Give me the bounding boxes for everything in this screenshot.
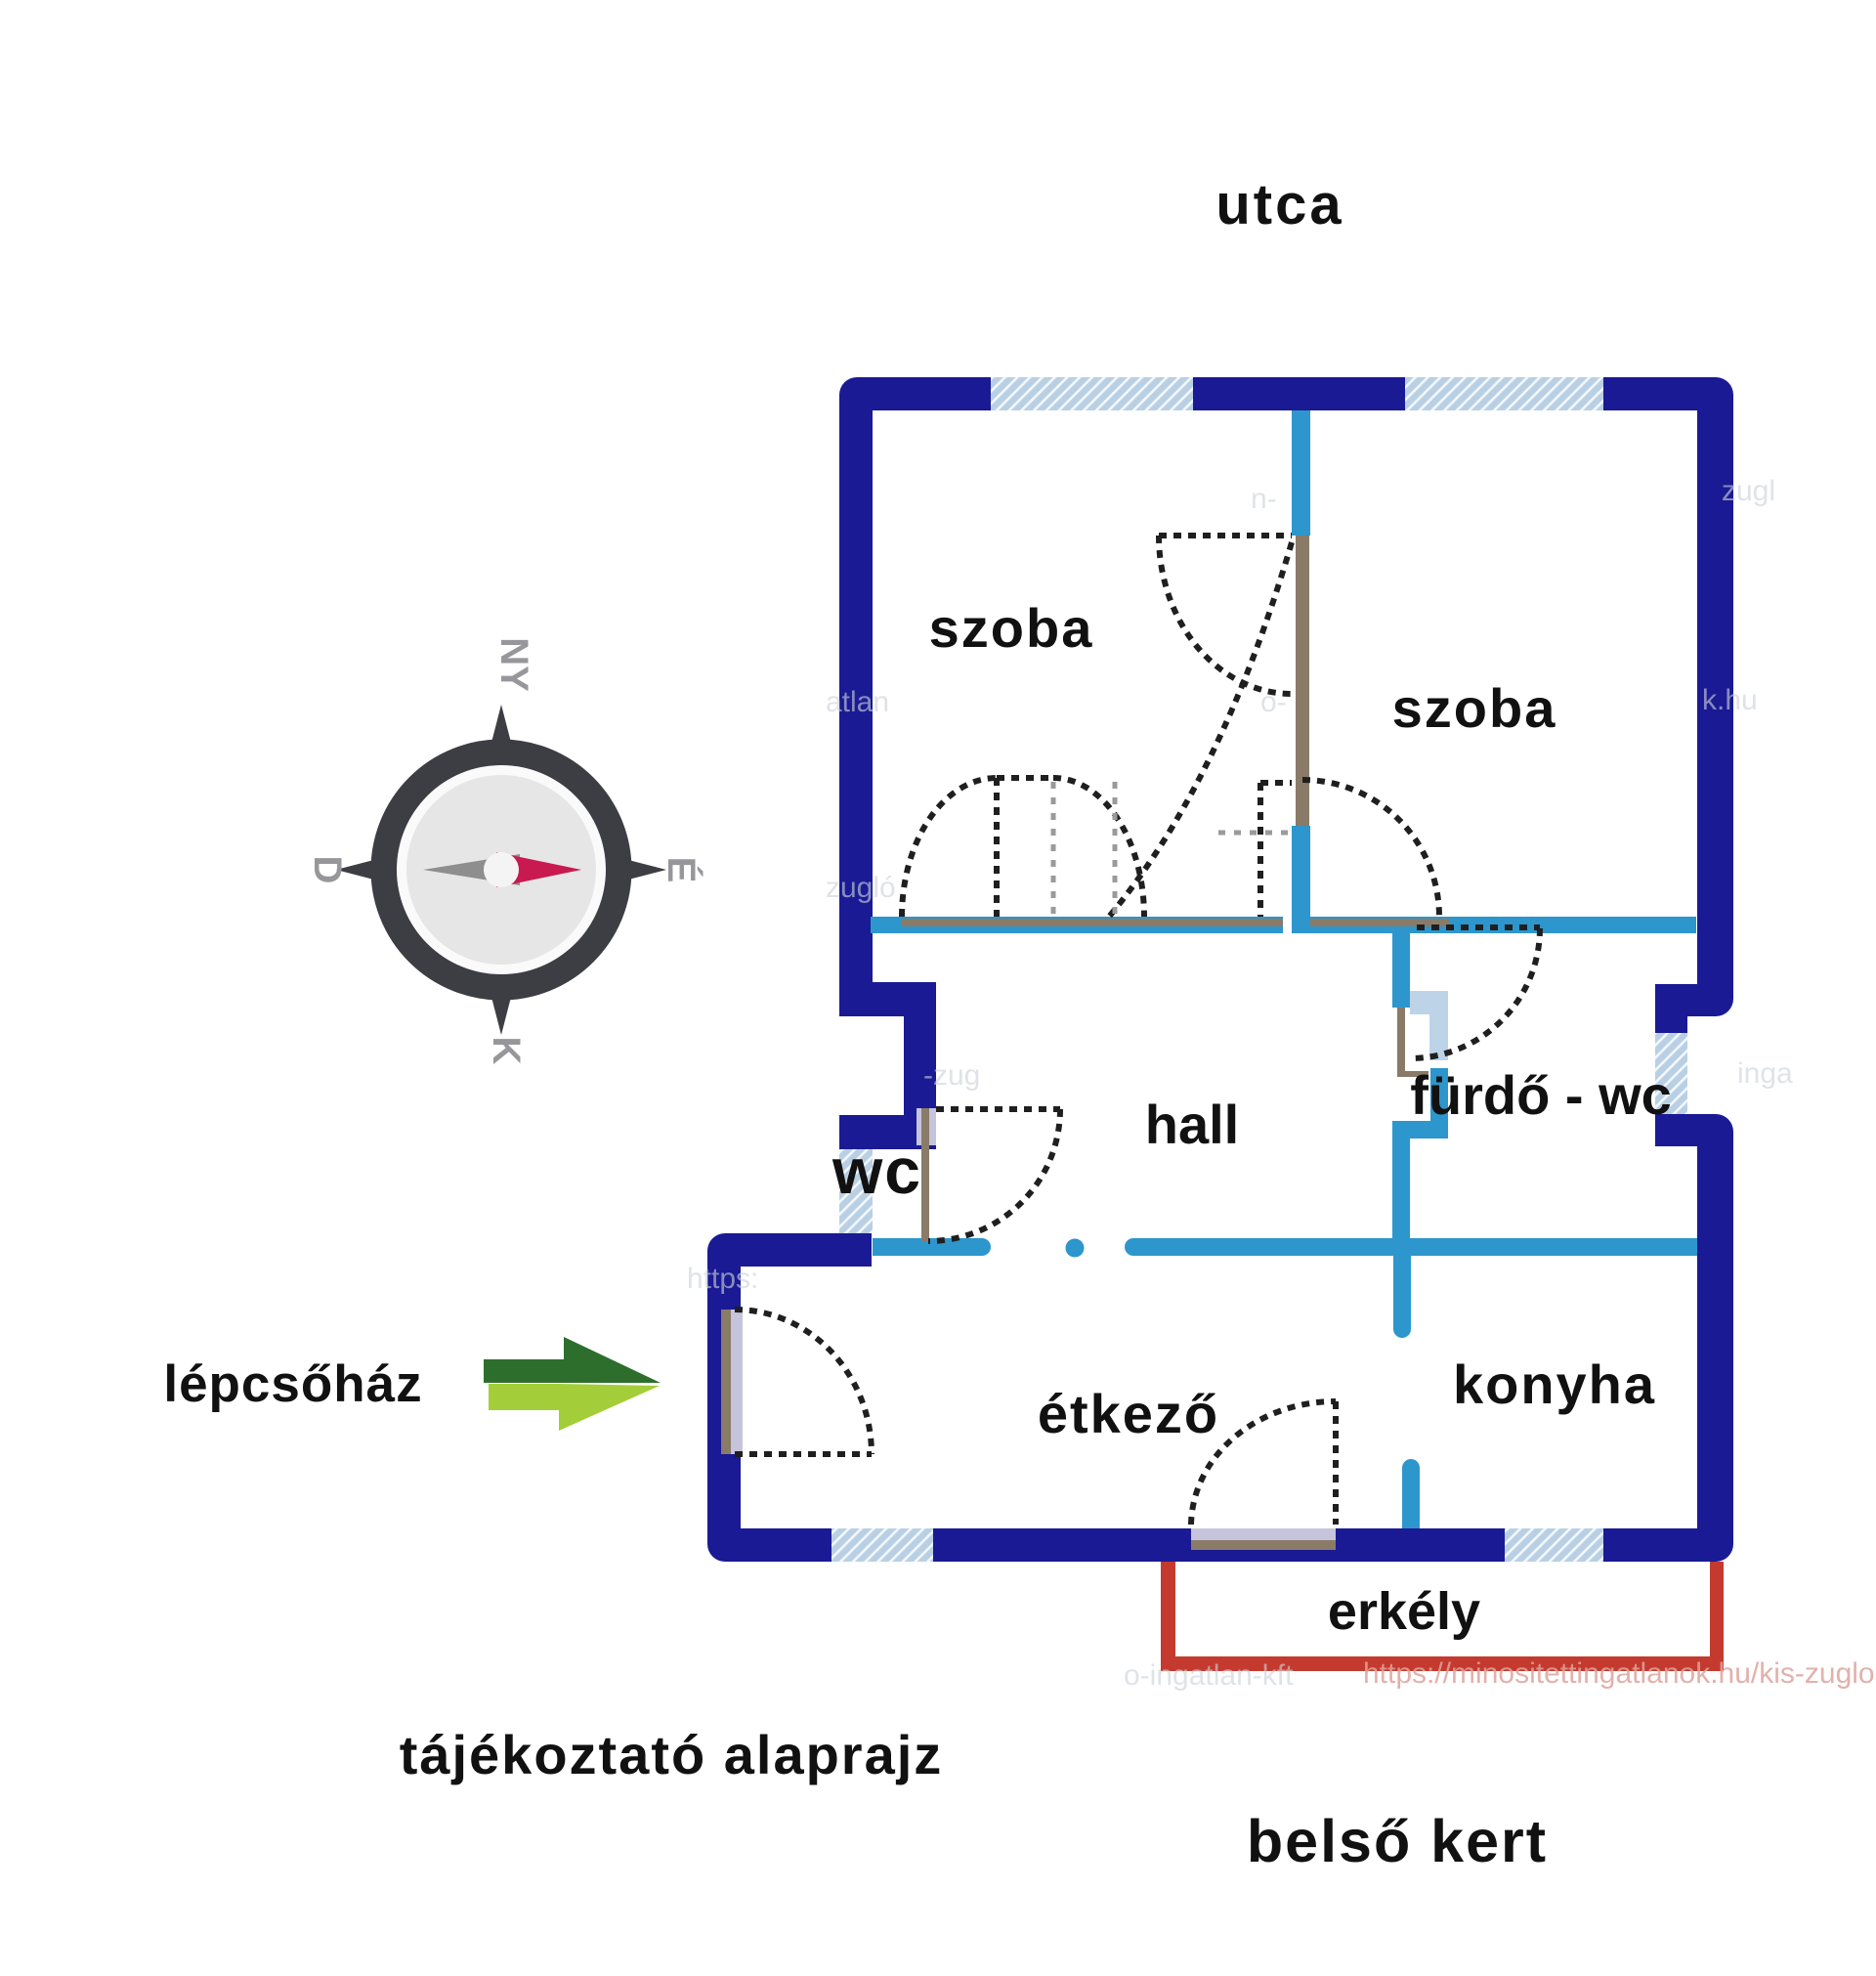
svg-text:belső kert: belső kert	[1247, 1808, 1548, 1874]
svg-text:-zug: -zug	[923, 1059, 980, 1092]
svg-text:lépcsőház: lépcsőház	[163, 1355, 422, 1413]
svg-text:o-ingatlan-kft: o-ingatlan-kft	[1124, 1659, 1294, 1692]
svg-text:K: K	[485, 1037, 528, 1065]
svg-text:hall: hall	[1145, 1094, 1239, 1155]
svg-text:atlan: atlan	[826, 686, 889, 718]
svg-text:erkély: erkély	[1328, 1582, 1480, 1641]
svg-text:É: É	[660, 857, 703, 883]
svg-text:szoba: szoba	[929, 597, 1094, 659]
svg-text:o-: o-	[1260, 686, 1287, 718]
svg-text:n-: n-	[1251, 483, 1277, 515]
svg-text:zugl: zugl	[1722, 475, 1775, 507]
svg-text:tájékoztató alaprajz: tájékoztató alaprajz	[400, 1724, 944, 1785]
svg-text:zugló: zugló	[826, 872, 896, 904]
svg-text:utca: utca	[1215, 173, 1343, 236]
svg-text:wc: wc	[831, 1135, 922, 1207]
svg-text:https:: https:	[687, 1263, 758, 1295]
svg-text:https://minositettingatlanok.h: https://minositettingatlanok.hu/kis-zugl…	[1363, 1657, 1876, 1690]
svg-text:k.hu: k.hu	[1702, 684, 1758, 716]
svg-text:fürdő - wc: fürdő - wc	[1410, 1064, 1672, 1126]
svg-text:konyha: konyha	[1453, 1353, 1656, 1415]
svg-text:szoba: szoba	[1392, 677, 1557, 739]
svg-text:NY: NY	[492, 637, 535, 692]
svg-text:étkező: étkező	[1038, 1383, 1219, 1444]
svg-text:D: D	[306, 856, 349, 884]
svg-text:inga: inga	[1737, 1057, 1793, 1090]
